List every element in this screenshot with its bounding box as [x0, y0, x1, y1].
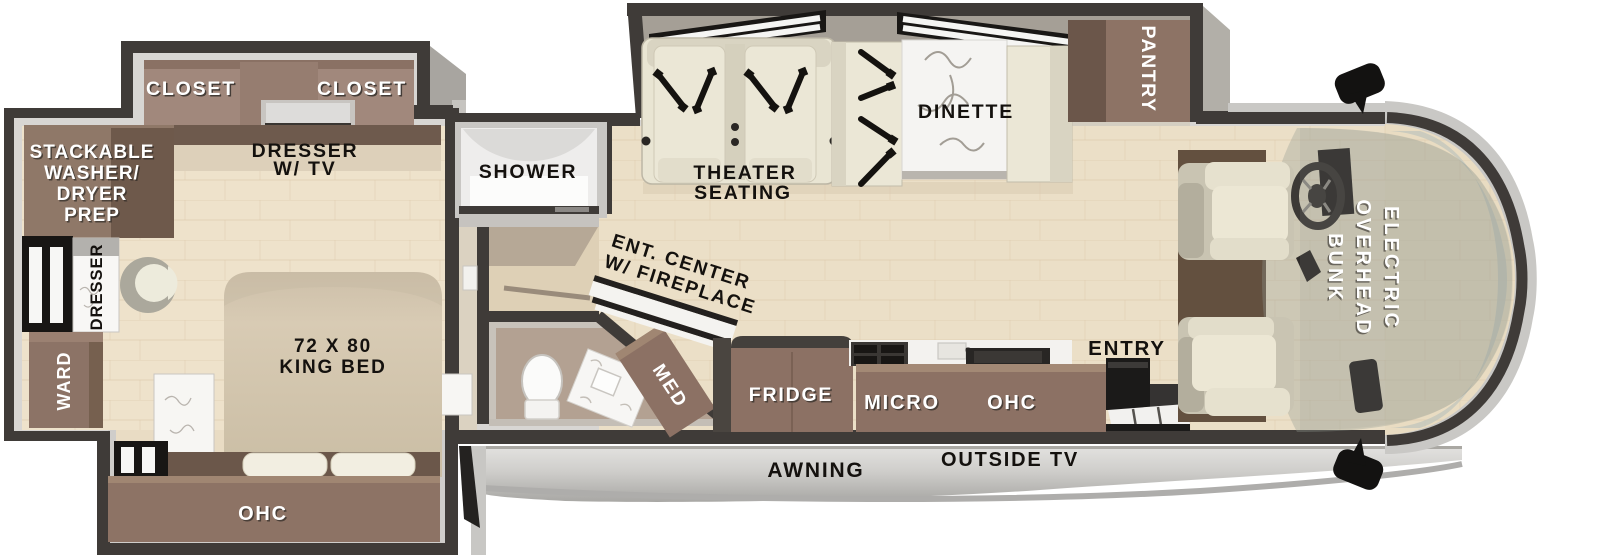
svg-text:FRIDGE: FRIDGE [749, 384, 833, 406]
svg-text:CLOSET: CLOSET [317, 78, 407, 100]
svg-text:DRESSER: DRESSER [88, 244, 106, 331]
svg-text:MICRO: MICRO [864, 392, 940, 414]
svg-text:DINETTE: DINETTE [918, 101, 1014, 123]
svg-text:OHC: OHC [238, 503, 288, 525]
svg-text:SEATING: SEATING [694, 182, 792, 204]
svg-text:KING BED: KING BED [279, 357, 386, 378]
svg-text:ENTRY: ENTRY [1088, 337, 1166, 360]
svg-text:OVERHEAD: OVERHEAD [1352, 199, 1374, 336]
svg-text:DRYER: DRYER [57, 184, 128, 205]
svg-text:WASHER/: WASHER/ [44, 163, 140, 184]
svg-text:PANTRY: PANTRY [1137, 26, 1159, 113]
svg-text:WARD: WARD [54, 352, 74, 411]
svg-text:AWNING: AWNING [767, 459, 864, 482]
svg-text:CLOSET: CLOSET [146, 78, 236, 100]
svg-text:W/ TV: W/ TV [273, 158, 336, 180]
svg-text:PREP: PREP [64, 205, 120, 226]
svg-text:OHC: OHC [987, 392, 1037, 414]
svg-text:STACKABLE: STACKABLE [30, 142, 155, 163]
svg-text:OUTSIDE TV: OUTSIDE TV [941, 449, 1079, 471]
svg-text:THEATER: THEATER [693, 162, 796, 184]
svg-text:72 X 80: 72 X 80 [294, 336, 372, 357]
svg-text:SHOWER: SHOWER [479, 161, 578, 183]
svg-text:ELECTRIC: ELECTRIC [1380, 206, 1402, 330]
svg-text:BUNK: BUNK [1324, 233, 1346, 303]
